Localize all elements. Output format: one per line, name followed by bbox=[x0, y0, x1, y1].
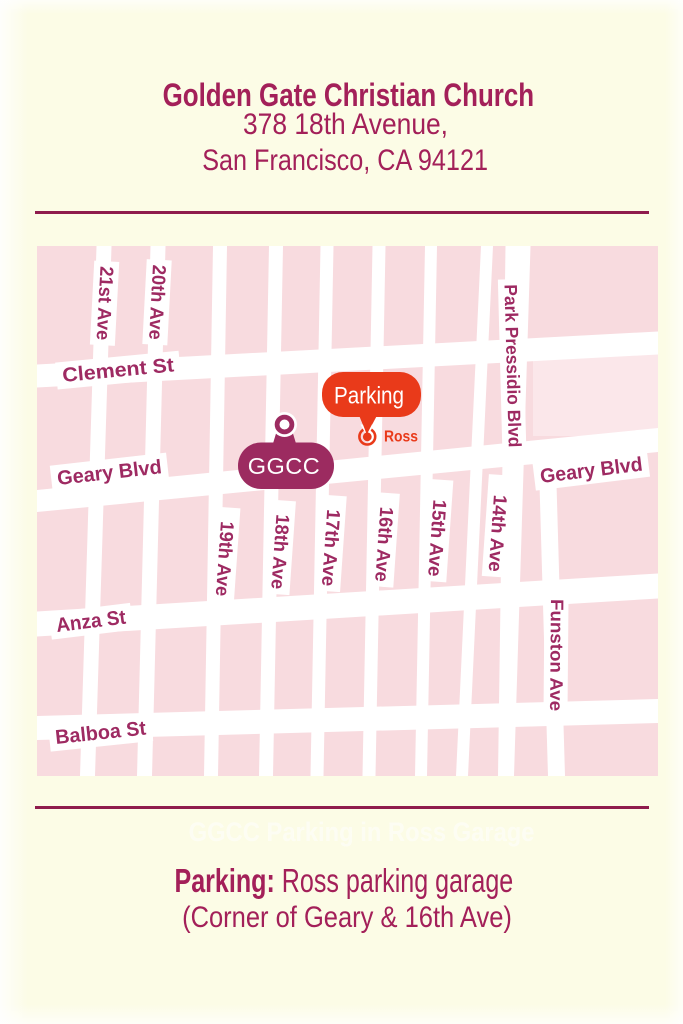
svg-text:20th Ave: 20th Ave bbox=[144, 264, 169, 340]
svg-text:GGCC: GGCC bbox=[248, 453, 321, 479]
svg-text:21st Ave: 21st Ave bbox=[92, 266, 117, 341]
svg-text:Ross: Ross bbox=[384, 429, 418, 446]
svg-text:Park Pressidio Blvd: Park Pressidio Blvd bbox=[501, 284, 525, 447]
svg-text:Funston Ave: Funston Ave bbox=[546, 599, 567, 711]
svg-text:Parking: Parking bbox=[334, 383, 404, 410]
